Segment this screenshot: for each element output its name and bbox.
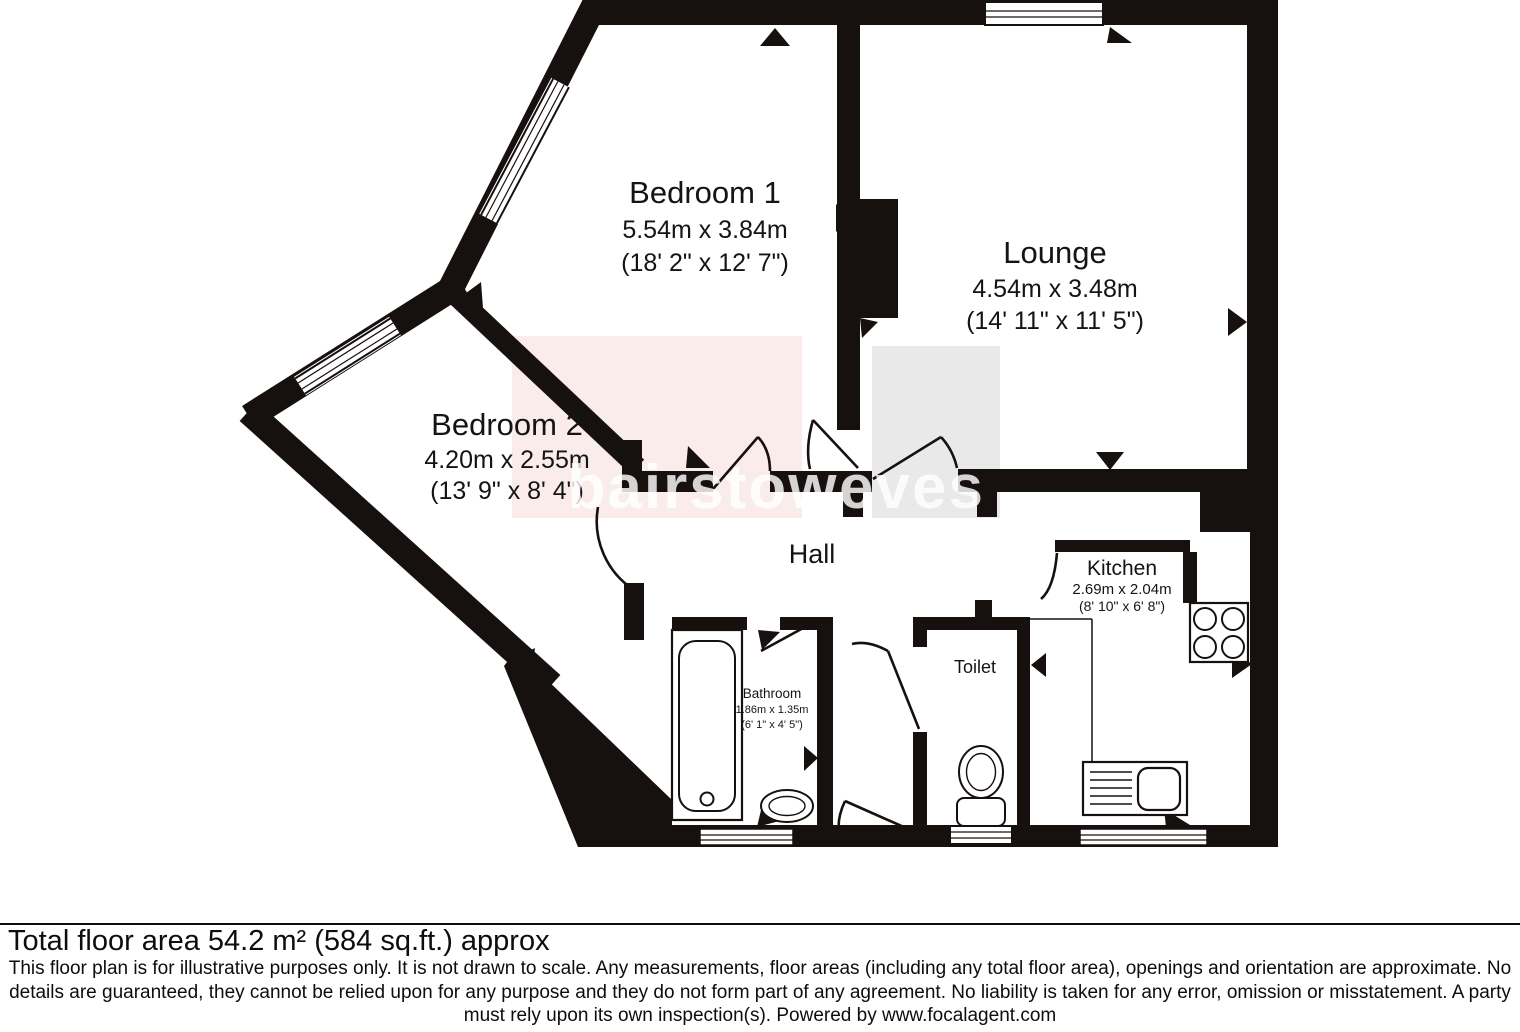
room-dim-kitchen-imperial: (8' 10" x 6' 8")	[1079, 598, 1165, 614]
wall-bathroom-top-left	[672, 617, 747, 630]
arrow-icon-top-wall	[760, 28, 790, 46]
room-dim-bathroom-imperial: (6' 1" x 4' 5")	[741, 719, 803, 731]
room-label-hall: Hall	[789, 539, 836, 569]
room-dim-lounge-imperial: (14' 11" x 11' 5")	[966, 307, 1144, 335]
wall-top	[598, 0, 1278, 25]
disclaimer: This floor plan is for illustrative purp…	[0, 957, 1520, 1028]
disclaimer-line: must rely upon its own inspection(s). Po…	[0, 1004, 1520, 1028]
room-dim-kitchen-metric: 2.69m x 2.04m	[1072, 581, 1171, 598]
bathroom-sink-icon	[761, 790, 813, 822]
floorplan-canvas: Bedroom 1 5.54m x 3.84m (18' 2" x 12' 7"…	[0, 0, 1520, 923]
wall-toilet-top-stub	[975, 600, 992, 617]
watermark-word1: bairstow	[568, 453, 839, 522]
bath-icon	[672, 630, 742, 820]
window-kitchen-bottom	[1080, 829, 1207, 845]
arrow-icon-toilet-wall	[1031, 653, 1046, 677]
hob-icon	[1190, 603, 1248, 662]
wall-bedroom2-right-stub	[624, 583, 644, 640]
room-dim-bedroom1-imperial: (18' 2" x 12' 7")	[621, 249, 789, 277]
arrow-icon-chimney	[860, 318, 878, 338]
watermark-word2: eves	[839, 453, 985, 522]
door-toilet	[852, 643, 919, 729]
toilet-wc-icon	[950, 746, 1012, 844]
room-label-kitchen: Kitchen	[1087, 557, 1157, 580]
wall-toilet-top	[913, 617, 1017, 630]
wall-bathroom-top-right	[780, 617, 833, 630]
window-diagonal-lower	[295, 318, 400, 393]
window-top	[985, 2, 1103, 25]
arrow-icon-right-wall	[1228, 308, 1247, 336]
kitchen-sink-icon	[1083, 762, 1187, 815]
room-label-bathroom: Bathroom	[743, 686, 802, 701]
total-floor-area: Total floor area 54.2 m² (584 sq.ft.) ap…	[8, 925, 550, 958]
wall-kitchen-hob-side	[1183, 552, 1197, 603]
wall-lounge-bottom	[958, 469, 1278, 492]
arrow-icon-lounge-bottom	[1096, 452, 1124, 470]
room-dim-bedroom2-metric: 4.20m x 2.55m	[424, 446, 589, 474]
room-dim-bedroom1-metric: 5.54m x 3.84m	[622, 216, 787, 244]
door-arc-kitchen	[1041, 553, 1057, 599]
window-diagonal-upper	[481, 79, 569, 223]
room-label-toilet: Toilet	[954, 657, 996, 677]
room-label-bedroom1: Bedroom 1	[629, 175, 781, 210]
disclaimer-line: This floor plan is for illustrative purp…	[0, 957, 1520, 981]
arrow-icon-under-window	[1107, 27, 1132, 43]
room-label-lounge: Lounge	[1003, 235, 1106, 270]
disclaimer-line: details are guaranteed, they cannot be r…	[0, 981, 1520, 1005]
room-dim-bathroom-metric: 1.86m x 1.35m	[736, 704, 809, 716]
room-dim-bedroom2-imperial: (13' 9" x 8' 4")	[430, 477, 584, 505]
wall-right	[1247, 0, 1278, 532]
room-label-bedroom2: Bedroom 2	[431, 407, 583, 442]
wall-toilet-left-bottom	[913, 732, 927, 845]
wall-kitchen-right	[1250, 532, 1278, 847]
watermark: bairstow eves	[568, 453, 985, 522]
room-dim-lounge-metric: 4.54m x 3.48m	[972, 275, 1137, 303]
wall-kitchen-top	[1055, 540, 1190, 552]
wall-bathroom-right	[817, 617, 833, 825]
arrow-icon-bathroom-right	[804, 746, 818, 771]
wall-divider-b1-lounge-lower	[837, 318, 860, 430]
window-bathroom-bottom	[700, 829, 793, 845]
wall-divider-b1-lounge-upper	[837, 25, 860, 199]
